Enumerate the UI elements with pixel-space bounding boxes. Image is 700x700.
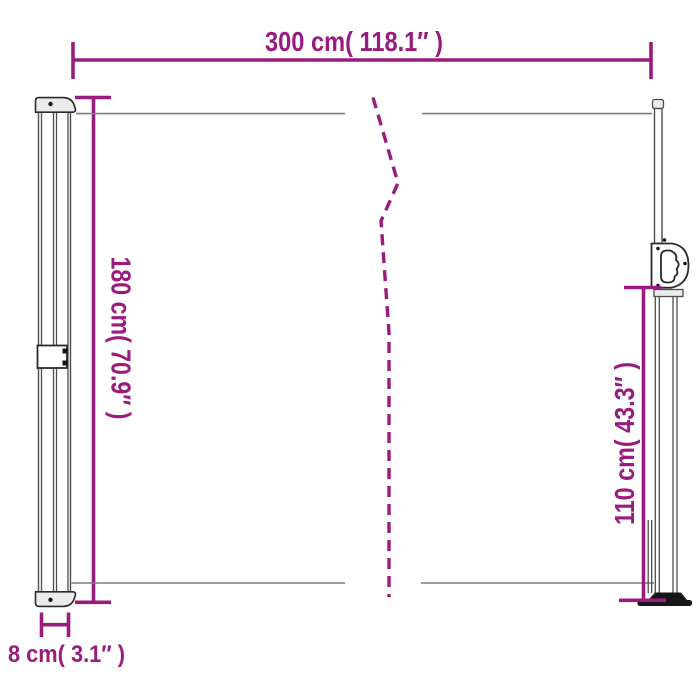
support-pole bbox=[638, 100, 693, 607]
depth-dimension-label: 8 cm( 3.1″ ) bbox=[8, 641, 125, 668]
depth-dimension: 8 cm( 3.1″ ) bbox=[8, 613, 125, 669]
pole-collar bbox=[654, 290, 683, 297]
awning-dimension-diagram: 300 cm( 118.1″ ) 180 cm( 70.9″ ) bbox=[0, 0, 700, 700]
pole-top-cap bbox=[653, 100, 664, 109]
pole-height-dimension: 110 cm( 43.3″ ) bbox=[609, 288, 666, 601]
handle-screw bbox=[663, 238, 667, 242]
cassette-top-cap-screw bbox=[48, 102, 52, 106]
height-dimension-label: 180 cm( 70.9″ ) bbox=[106, 257, 137, 420]
cassette-bottom-cap-screw bbox=[48, 598, 52, 602]
width-dimension: 300 cm( 118.1″ ) bbox=[73, 26, 651, 79]
handle-screw bbox=[683, 262, 687, 266]
height-dimension: 180 cm( 70.9″ ) bbox=[75, 98, 137, 603]
bracket-bolt bbox=[63, 361, 68, 366]
bracket-bolt bbox=[63, 349, 68, 354]
cassette-post bbox=[36, 98, 76, 607]
fabric-break-line bbox=[373, 98, 398, 598]
width-dimension-label: 300 cm( 118.1″ ) bbox=[265, 26, 443, 57]
cassette-top-cap bbox=[36, 98, 76, 113]
pull-handle bbox=[652, 238, 689, 288]
pole-upper-tube bbox=[655, 109, 663, 244]
diagram-canvas: 300 cm( 118.1″ ) 180 cm( 70.9″ ) bbox=[0, 0, 700, 700]
cassette-bottom-cap bbox=[36, 592, 76, 607]
handle-screw bbox=[656, 247, 660, 251]
pole-lower-leg bbox=[648, 297, 677, 594]
pole-height-dimension-label: 110 cm( 43.3″ ) bbox=[609, 362, 640, 525]
